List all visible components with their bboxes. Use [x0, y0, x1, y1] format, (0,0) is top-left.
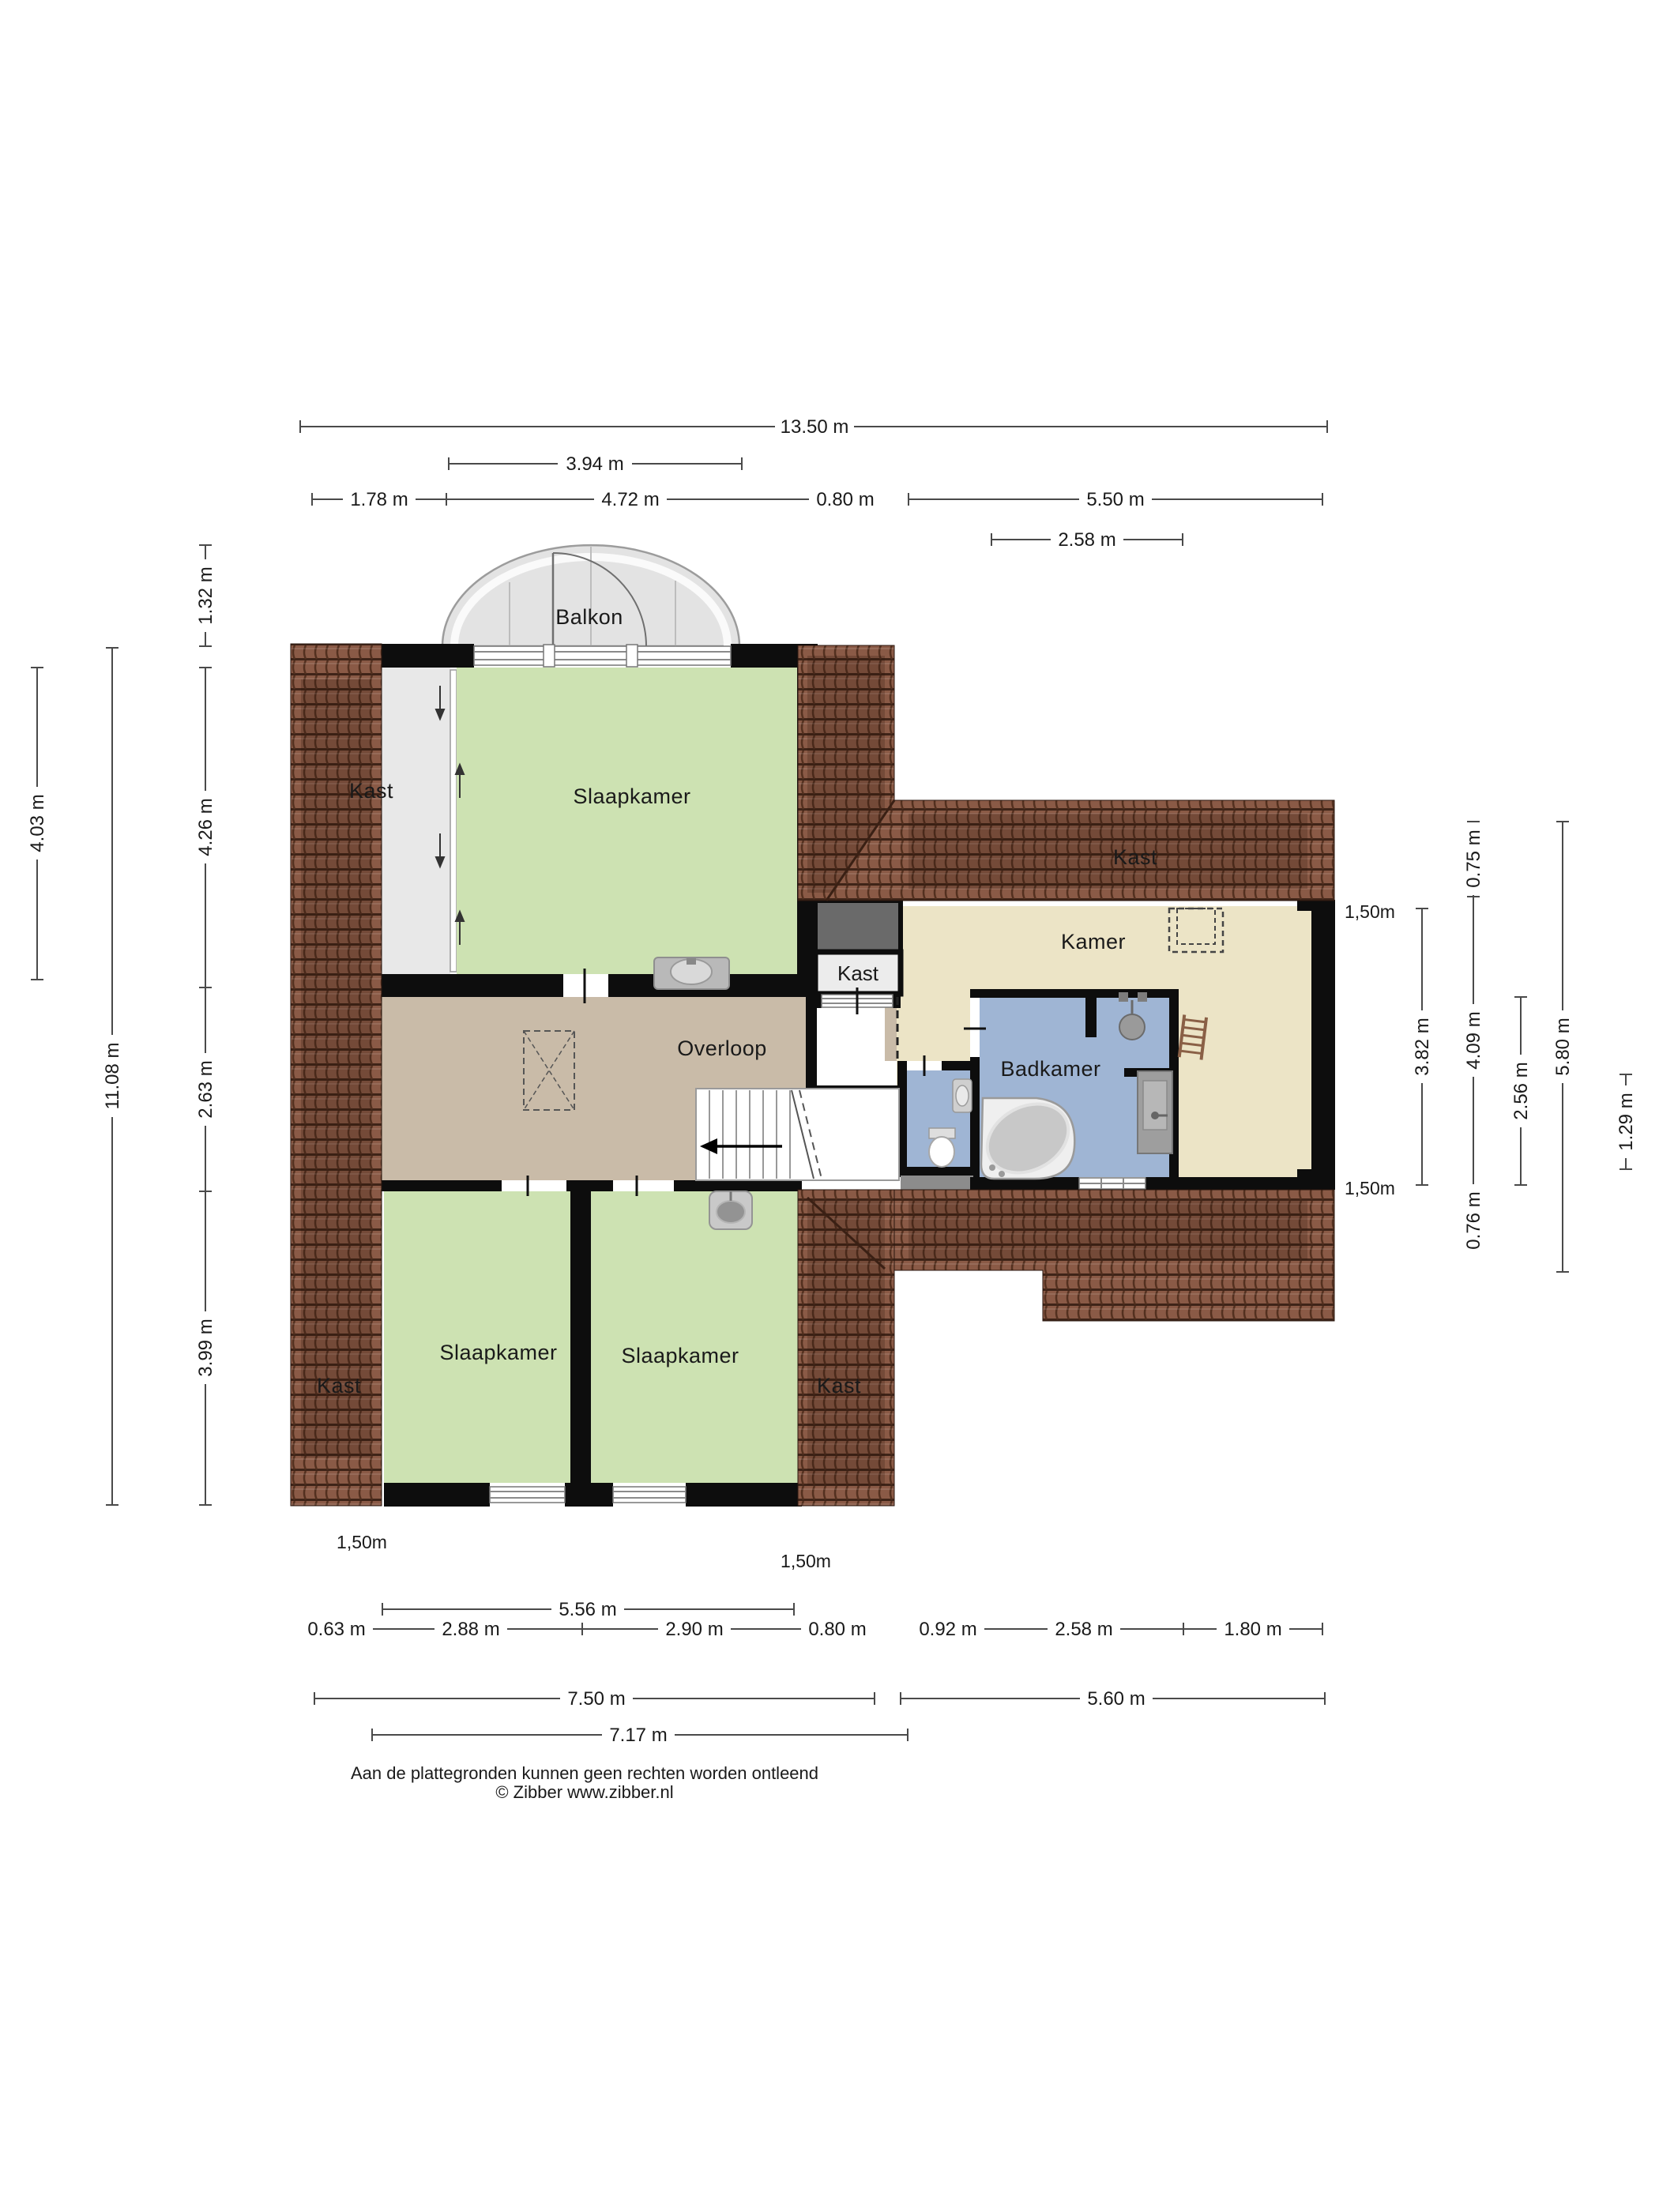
dim-bottom-segments: 0.63 m 2.88 m 2.90 m 0.80 m 0.92 m 2.58 …: [300, 1618, 1322, 1640]
dim-left-total: 11.08 m: [101, 648, 123, 1505]
svg-text:7.17 m: 7.17 m: [609, 1725, 667, 1746]
svg-text:5.60 m: 5.60 m: [1087, 1688, 1145, 1710]
svg-text:2.88 m: 2.88 m: [442, 1619, 499, 1640]
svg-text:4.72 m: 4.72 m: [601, 489, 659, 510]
window-bathroom: [1079, 1178, 1145, 1189]
svg-text:4.09 m: 4.09 m: [1463, 1011, 1484, 1069]
room-label-bedroom-bottommid: Slaapkamer: [621, 1344, 739, 1367]
room-label-bedroom-top: Slaapkamer: [573, 784, 690, 808]
stairs: [696, 1089, 899, 1180]
dim-top-balcony: 3.94 m: [449, 453, 742, 475]
balcony: Balkon: [442, 545, 739, 646]
dim-right-small: 1.29 m: [1615, 1074, 1637, 1169]
dim-right-kamer-height: 3.82 m: [1411, 908, 1433, 1185]
svg-text:2.58 m: 2.58 m: [1058, 529, 1115, 551]
room-label-bathroom: Badkamer: [1000, 1057, 1100, 1081]
svg-text:4.03 m: 4.03 m: [27, 794, 48, 852]
svg-text:0.75 m: 0.75 m: [1463, 829, 1484, 887]
knee-label-right-bottom: 1,50m: [1345, 1178, 1395, 1198]
room-label-kamer: Kamer: [1061, 930, 1126, 954]
svg-text:5.80 m: 5.80 m: [1552, 1018, 1574, 1075]
svg-text:3.82 m: 3.82 m: [1412, 1018, 1433, 1075]
room-label-bedroom-bottomleft: Slaapkamer: [439, 1341, 557, 1364]
shaft-box: [815, 901, 901, 952]
svg-text:2.90 m: 2.90 m: [665, 1619, 723, 1640]
svg-text:1.80 m: 1.80 m: [1224, 1619, 1281, 1640]
vanity-sink-icon: [654, 957, 729, 989]
svg-text:2.56 m: 2.56 m: [1510, 1062, 1532, 1119]
knee-label-bottom-right: 1,50m: [781, 1551, 831, 1571]
svg-text:7.50 m: 7.50 m: [567, 1688, 625, 1710]
room-label-closet-bottomright: Kast: [817, 1374, 861, 1398]
svg-text:1.29 m: 1.29 m: [1616, 1093, 1637, 1150]
window-balcony: [474, 645, 731, 667]
copyright-text: © Zibber www.zibber.nl: [495, 1782, 673, 1802]
svg-text:4.26 m: 4.26 m: [195, 798, 216, 856]
svg-text:2.63 m: 2.63 m: [195, 1060, 216, 1118]
floorplan-canvas: Balkon: [0, 0, 1659, 2212]
window-bedroom-bottommid: [613, 1487, 686, 1503]
dim-bottom-right-total: 5.60 m: [901, 1687, 1325, 1710]
knee-label-right-top: 1,50m: [1345, 901, 1395, 922]
svg-text:11.08 m: 11.08 m: [102, 1043, 123, 1110]
svg-text:2.58 m: 2.58 m: [1055, 1619, 1112, 1640]
dim-top-segments: 1.78 m 4.72 m 0.80 m 5.50 m: [312, 488, 1322, 510]
svg-text:13.50 m: 13.50 m: [781, 416, 849, 438]
dim-left-outer: 4.03 m: [26, 668, 48, 980]
dim-top-total: 13.50 m: [300, 416, 1327, 438]
dim-bottom-inner-total: 7.17 m: [372, 1724, 908, 1746]
vanity-icon-bathroom: [1138, 1071, 1172, 1153]
room-label-closet-box: Kast: [837, 961, 879, 985]
room-label-landing: Overloop: [677, 1036, 767, 1060]
knee-label-bottom-left: 1,50m: [337, 1532, 387, 1552]
floorplan-page: Balkon: [0, 0, 1659, 2212]
dim-left-column: 1.32 m 4.26 m 2.63 m 3.99 m: [194, 545, 216, 1505]
closet-sliding-track: [450, 670, 457, 972]
dim-right-bath-height: 2.56 m: [1510, 997, 1532, 1185]
svg-text:5.50 m: 5.50 m: [1086, 489, 1144, 510]
dim-top-kamer-width: 2.58 m: [991, 529, 1183, 551]
room-label-balkon: Balkon: [555, 605, 623, 629]
room-label-closet-roof-right: Kast: [1113, 845, 1157, 869]
window-bedroom-bottomleft: [490, 1487, 565, 1503]
dim-right-column-b: 0.75 m 4.09 m 0.76 m: [1462, 822, 1484, 1257]
room-bedroom-top: [457, 668, 797, 974]
dim-bottom-rooms-width: 5.56 m: [382, 1598, 794, 1620]
svg-text:1.78 m: 1.78 m: [350, 489, 408, 510]
svg-text:3.94 m: 3.94 m: [566, 453, 623, 475]
sink-icon-bedroom: [709, 1191, 752, 1229]
disclaimer-text: Aan de plattegronden kunnen geen rechten…: [351, 1763, 818, 1783]
room-bedroom-bottommid: [591, 1191, 798, 1483]
room-label-closet-bottomleft: Kast: [317, 1374, 361, 1398]
room-label-closet-topleft: Kast: [349, 779, 393, 803]
svg-text:0.92 m: 0.92 m: [919, 1619, 976, 1640]
svg-text:3.99 m: 3.99 m: [195, 1319, 216, 1376]
room-bedroom-bottomleft: [384, 1191, 570, 1483]
svg-text:0.80 m: 0.80 m: [808, 1619, 866, 1640]
svg-text:0.76 m: 0.76 m: [1463, 1191, 1484, 1249]
svg-text:5.56 m: 5.56 m: [559, 1599, 616, 1620]
svg-text:1.32 m: 1.32 m: [195, 566, 216, 624]
svg-text:0.80 m: 0.80 m: [816, 489, 874, 510]
svg-text:0.63 m: 0.63 m: [307, 1619, 365, 1640]
toilet-icon: [929, 1128, 955, 1167]
dim-right-block-total: 5.80 m: [1552, 822, 1574, 1272]
sink-icon-toilet: [953, 1079, 972, 1112]
dim-bottom-left-total: 7.50 m: [314, 1687, 875, 1710]
